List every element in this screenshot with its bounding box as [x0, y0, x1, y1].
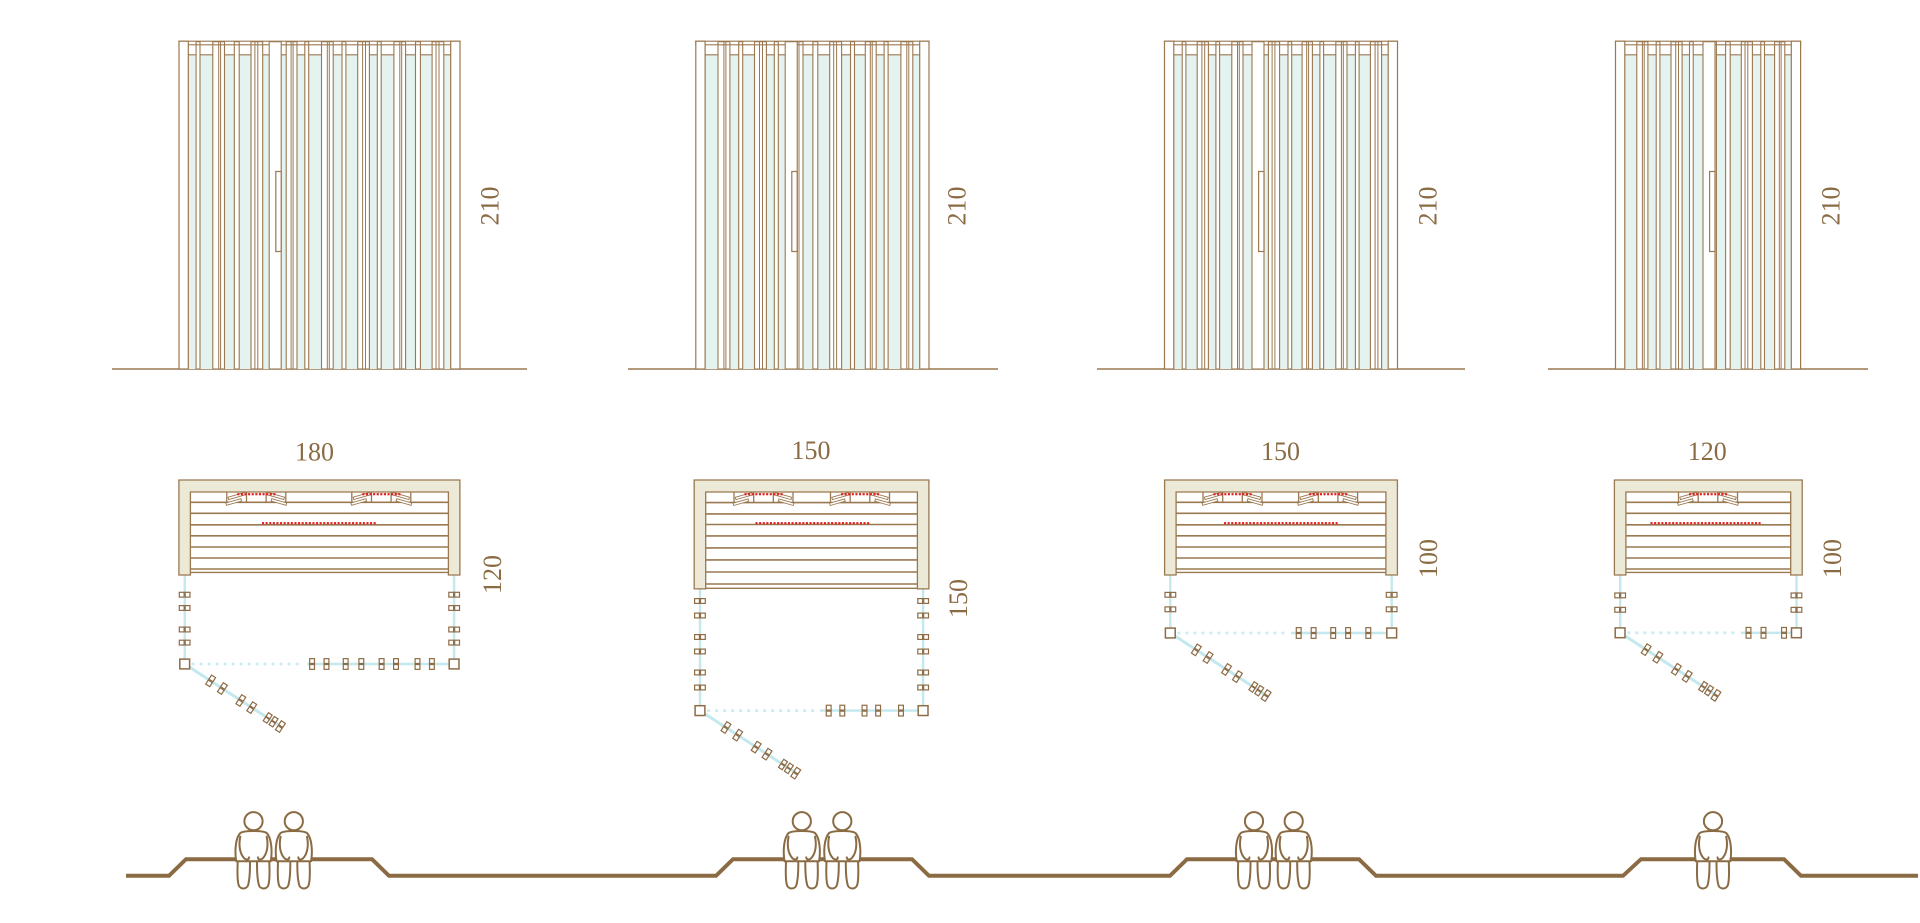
svg-text:180: 180	[295, 437, 334, 466]
svg-text:120: 120	[478, 555, 507, 594]
svg-text:150: 150	[792, 436, 831, 465]
svg-text:150: 150	[944, 579, 973, 618]
svg-text:210: 210	[475, 187, 504, 226]
svg-text:100: 100	[1818, 539, 1847, 578]
svg-text:150: 150	[1261, 437, 1300, 466]
svg-text:210: 210	[1816, 187, 1845, 226]
svg-text:210: 210	[942, 187, 971, 226]
svg-text:120: 120	[1688, 437, 1727, 466]
svg-text:100: 100	[1414, 539, 1443, 578]
svg-text:210: 210	[1413, 187, 1442, 226]
